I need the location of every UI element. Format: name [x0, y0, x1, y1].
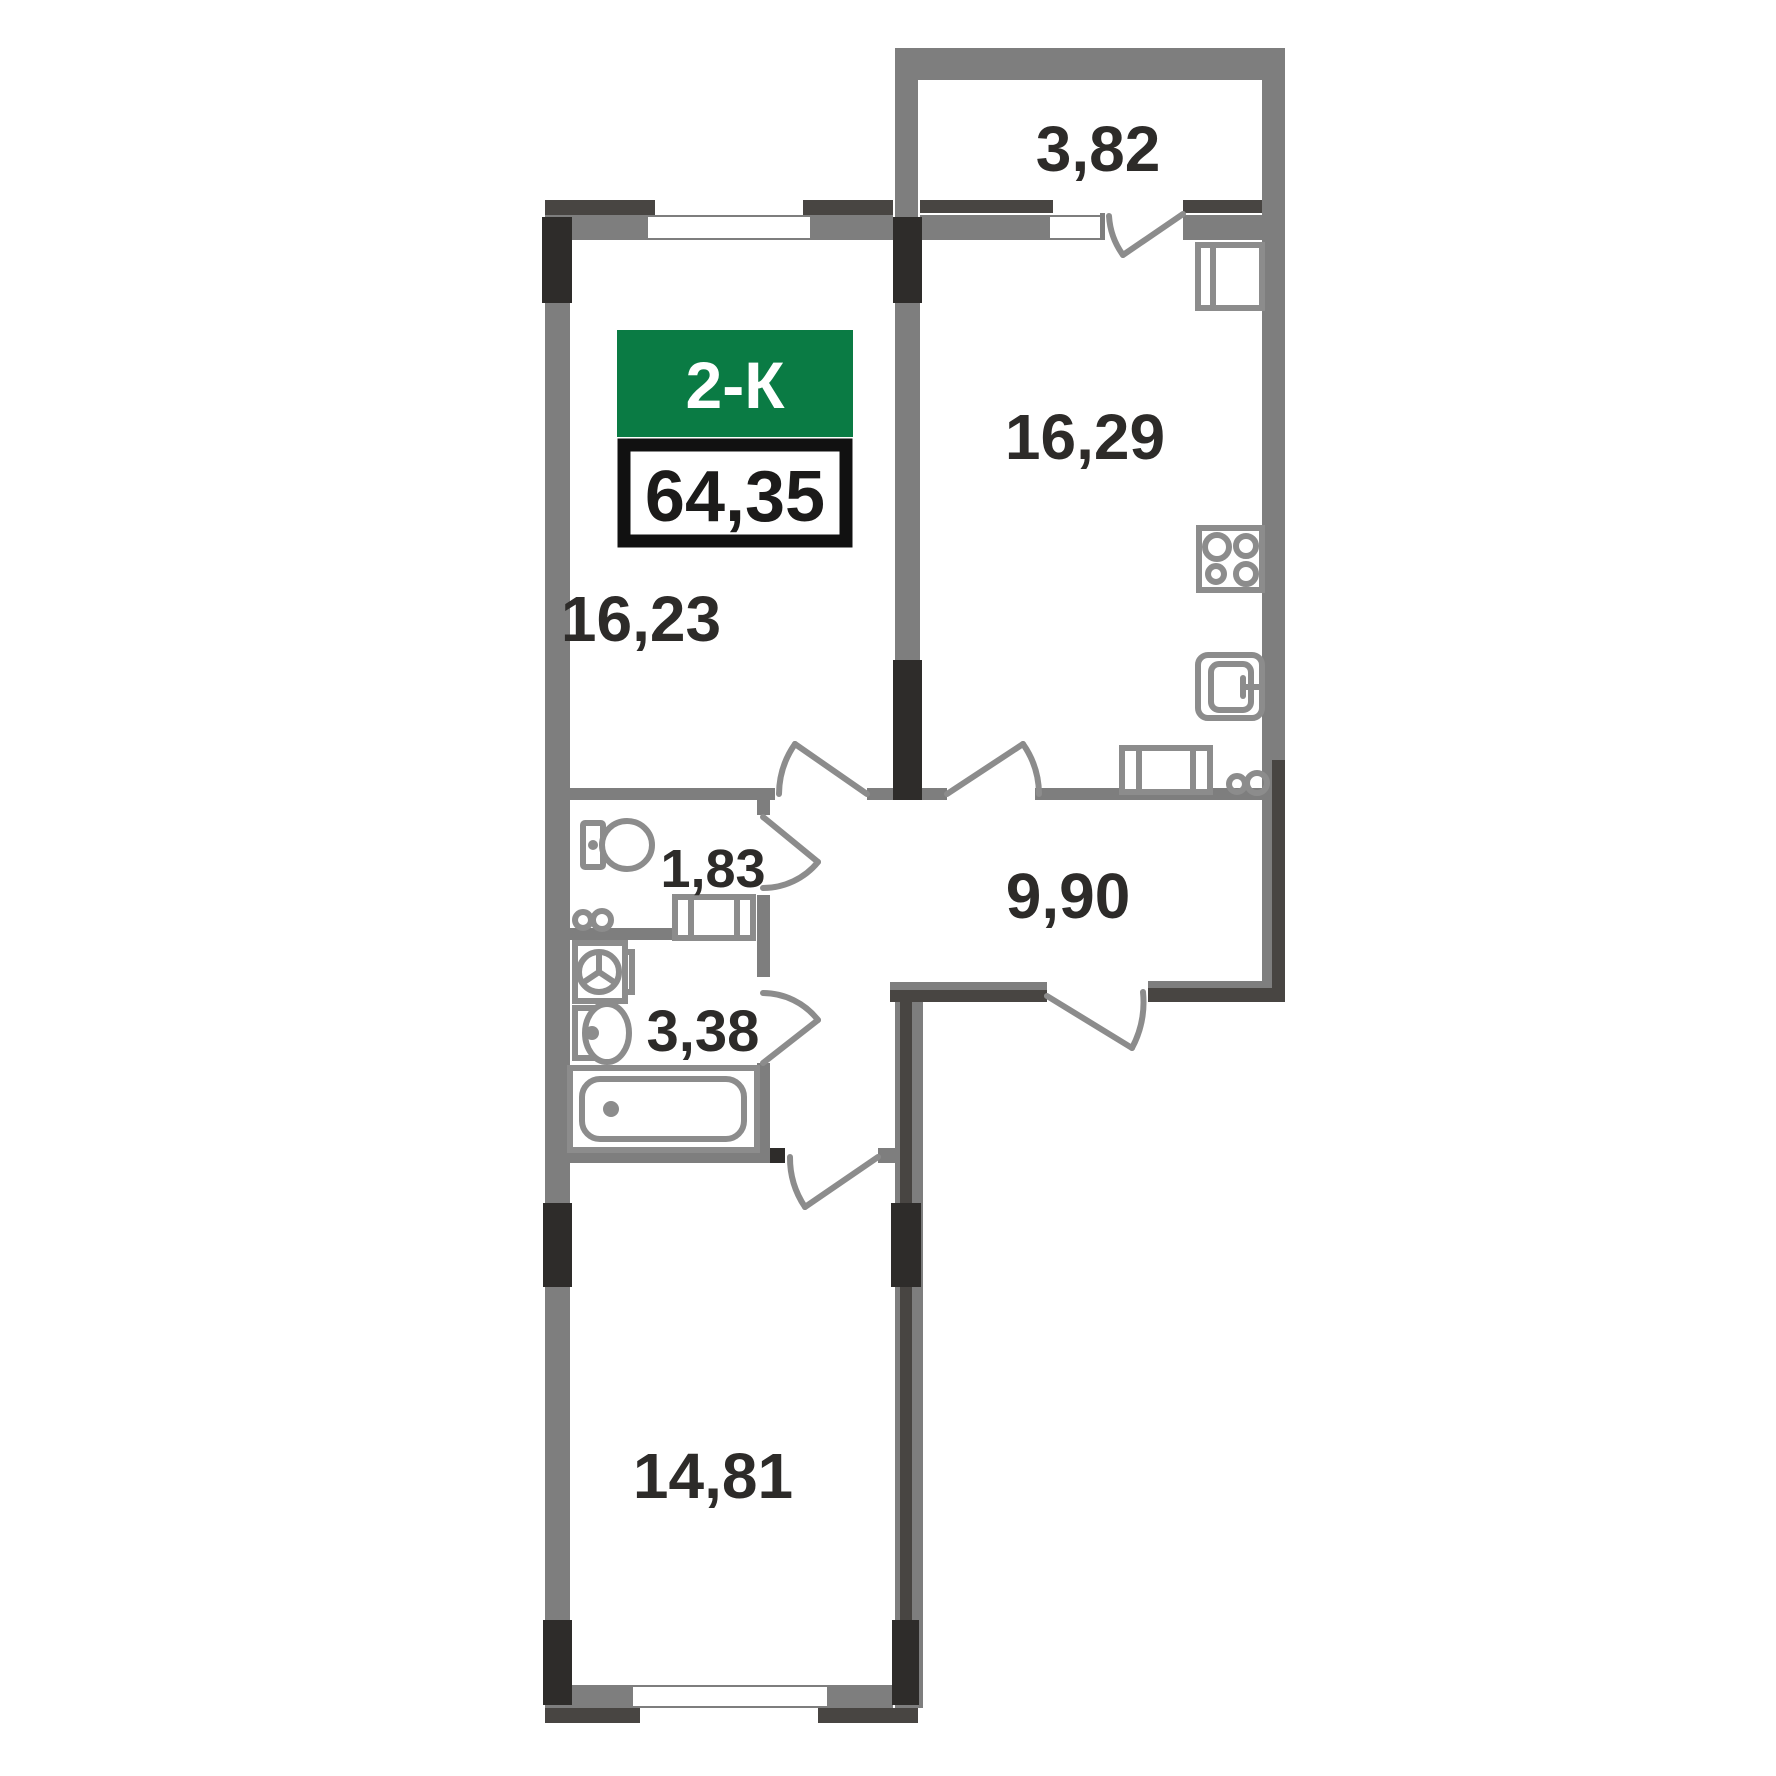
door-jamb: [1100, 213, 1105, 240]
hallway-area-label: 9,90: [1006, 860, 1131, 932]
apartment-type-label: 2-К: [686, 348, 786, 422]
door-swing-icon: [805, 1157, 878, 1207]
door-swing-icon: [1132, 992, 1144, 1048]
wall: [895, 80, 918, 240]
wall: [1148, 981, 1285, 988]
wall-dark: [900, 990, 912, 1622]
door-swing-icon: [790, 1157, 805, 1207]
door-swing-icon: [795, 744, 867, 794]
pillar: [893, 217, 922, 303]
wall: [545, 215, 570, 1708]
wall: [895, 48, 1285, 80]
pipe-riser-icon: [575, 911, 611, 929]
wall-dark: [545, 1708, 640, 1723]
door-swing-icon: [1047, 996, 1132, 1048]
pillar: [770, 1148, 785, 1163]
room-labels: 3,82 16,29 16,23 1,83 9,90 3,38 14,81: [561, 113, 1165, 1512]
window-icon: [1050, 217, 1100, 238]
wall-dark: [545, 200, 655, 215]
pillar: [892, 1620, 919, 1705]
door-swing-icon: [1023, 744, 1039, 794]
wall: [757, 895, 770, 977]
wall-dark: [920, 200, 1053, 213]
wall: [922, 788, 947, 800]
door-swing-icon: [763, 862, 818, 888]
washing-machine-icon: [575, 943, 632, 1001]
apartment-badge: 2-К 64,35: [617, 330, 853, 541]
bedroom-area-label: 14,81: [633, 1440, 793, 1512]
vent-duct-icon: [675, 897, 753, 938]
wc-area-label: 1,83: [660, 839, 765, 899]
stove-icon: [1199, 528, 1262, 590]
door-swing-icon: [1109, 216, 1123, 255]
bath-sink-icon: [575, 1004, 629, 1062]
pillar: [542, 217, 572, 303]
wall-dark: [1272, 760, 1285, 1002]
balcony-area-label: 3,82: [1036, 113, 1161, 185]
pipe-riser-icon: [1229, 773, 1267, 793]
floor-plan: 3,82 16,29 16,23 1,83 9,90 3,38 14,81 2-…: [0, 0, 1776, 1776]
door-swing-icon: [779, 744, 795, 794]
kitchen-sink-icon: [1198, 655, 1262, 718]
wall-dark: [1148, 988, 1285, 1002]
kitchen-area-label: 16,29: [1005, 401, 1165, 473]
door-swing-icon: [1123, 214, 1183, 255]
fridge-icon: [1198, 245, 1262, 308]
window-icon: [633, 1687, 827, 1706]
total-area-label: 64,35: [645, 457, 825, 537]
door-swing-icon: [763, 1020, 818, 1063]
wall-dark: [803, 200, 893, 215]
wall-dark: [1183, 200, 1262, 213]
door-swing-icon: [763, 993, 818, 1020]
door-swing-icon: [763, 817, 818, 862]
living-room-area-label: 16,23: [561, 583, 721, 655]
wall-dark: [890, 990, 1047, 1002]
pillar: [543, 1620, 572, 1705]
wall: [867, 788, 893, 800]
door-swing-icon: [947, 744, 1023, 794]
vent-duct-icon: [1122, 748, 1210, 792]
wall: [1183, 215, 1262, 240]
pillar: [891, 1203, 921, 1287]
floor-plan-drawing: 3,82 16,29 16,23 1,83 9,90 3,38 14,81 2-…: [0, 0, 1776, 1776]
wall: [757, 800, 770, 815]
window-icon: [648, 217, 810, 238]
wall: [570, 788, 775, 800]
pillar: [543, 1203, 572, 1287]
wall-dark: [818, 1708, 918, 1723]
toilet-icon: [583, 821, 652, 869]
pillar: [893, 660, 922, 800]
bathroom-area-label: 3,38: [647, 999, 760, 1064]
bathtub-icon: [570, 1068, 757, 1150]
